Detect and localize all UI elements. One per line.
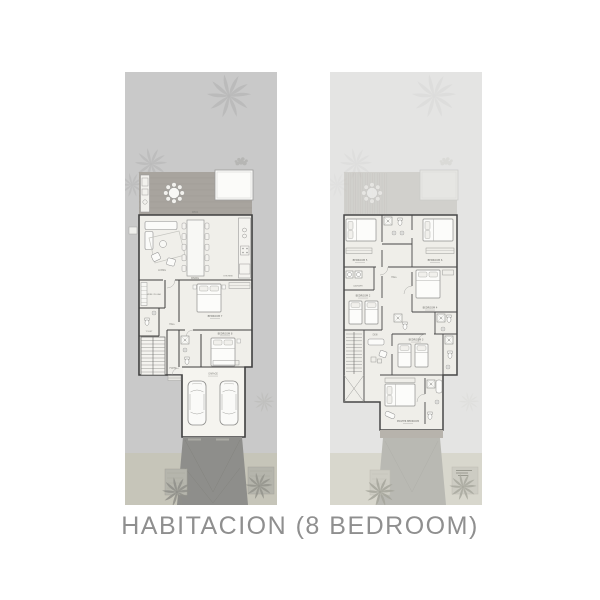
sofa — [145, 232, 153, 250]
label-foyer: FOYER — [169, 367, 177, 370]
sofa — [145, 222, 177, 230]
balcony-ledge — [380, 430, 443, 438]
entry-steps — [168, 376, 181, 381]
staircase — [141, 337, 165, 375]
label-dining: DINING — [191, 277, 200, 280]
outdoor-dining-table — [164, 183, 185, 204]
bed — [365, 301, 378, 324]
label-bedroom-5: BEDROOM 5 — [353, 259, 368, 262]
label-bedroom-8: BEDROOM 8 — [218, 332, 233, 335]
bbq-counter — [141, 175, 150, 212]
sofa — [368, 339, 384, 345]
label-bedroom-6: BEDROOM 6 — [428, 259, 443, 262]
bed — [415, 344, 428, 367]
driveway — [177, 437, 248, 505]
deck: DECK — [139, 170, 253, 215]
deck — [344, 170, 458, 215]
bed — [423, 219, 453, 241]
ac-pad — [129, 227, 137, 234]
label-living: LIVING — [158, 269, 166, 272]
label-bedroom-7: BEDROOM 7 — [208, 315, 223, 318]
label-laundry: LAUNDRY — [353, 285, 363, 288]
label-master-bedroom: MASTER BEDROOM — [397, 420, 419, 423]
first-floor-plan: BEDROOM 5 BEDROOM 6 — [330, 72, 482, 505]
label-hall: HALL — [391, 276, 397, 279]
label-wine-cellar: WINE CELLAR — [147, 293, 161, 296]
bed — [416, 270, 440, 298]
bed — [385, 384, 415, 406]
label-bedroom-3: BEDROOM 3 — [409, 339, 424, 342]
car — [188, 381, 206, 425]
outdoor-dining-table — [362, 183, 383, 204]
bed — [349, 301, 362, 324]
plan-caption: HABITACION (8 BEDROOM) — [0, 509, 600, 543]
label-den: DEN — [373, 334, 378, 337]
floorplan-figure: DECK LIVING — [0, 0, 600, 600]
dining-table — [187, 220, 204, 276]
coffee-table — [160, 241, 167, 248]
label-garage: GARAGE — [208, 373, 218, 376]
label-bedroom-4: BEDROOM 4 — [423, 307, 438, 310]
pool — [215, 170, 253, 200]
car — [220, 381, 238, 425]
label-toilet: TOILET — [146, 331, 154, 333]
bed — [398, 344, 411, 367]
label-deck: DECK — [192, 211, 199, 214]
bed — [211, 338, 235, 366]
bed — [346, 219, 376, 241]
garage: GARAGE — [183, 368, 244, 436]
ground-floor-plan: DECK LIVING — [125, 72, 277, 505]
label-kitchen: KITCHEN — [223, 276, 232, 278]
bed — [197, 284, 221, 312]
label-hall: HALL — [169, 323, 175, 326]
label-bedroom-2: BEDROOM 2 — [356, 295, 371, 298]
